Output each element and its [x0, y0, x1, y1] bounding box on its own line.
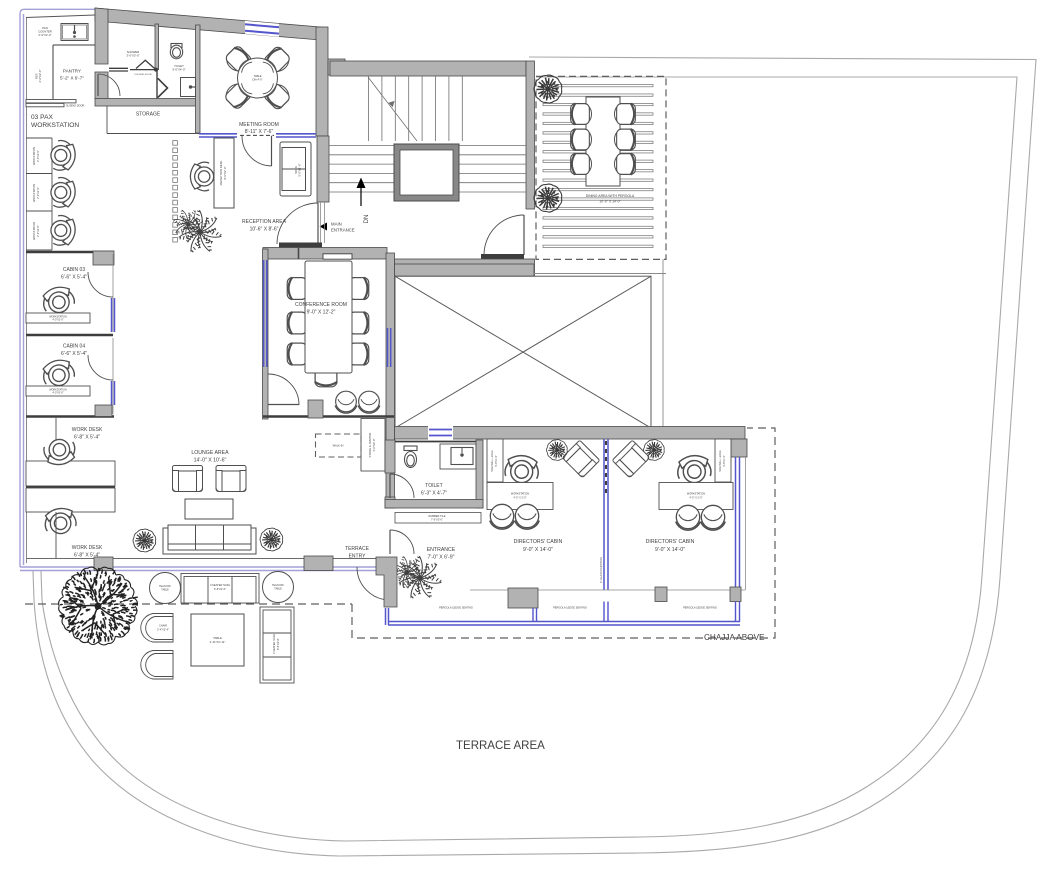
svg-text:ENTRANCE: ENTRANCE [331, 228, 355, 233]
svg-text:TABLE: TABLE [274, 587, 282, 590]
svg-text:10'-0" X 14'-0": 10'-0" X 14'-0" [599, 200, 621, 204]
svg-text:SIDE WALL LEDGE: SIDE WALL LEDGE [491, 450, 494, 472]
svg-text:2'-0"X1'-9": 2'-0"X1'-9" [37, 150, 40, 162]
svg-text:TERRACE: TERRACE [345, 546, 370, 552]
svg-text:9'-0" X 14'-0": 9'-0" X 14'-0" [523, 547, 553, 553]
svg-text:4'-0" X 2'-0": 4'-0" X 2'-0" [689, 497, 702, 500]
svg-text:WORK DESK: WORK DESK [72, 427, 103, 433]
svg-text:TOILET: TOILET [425, 483, 442, 489]
svg-text:WORKSTATION: WORKSTATION [31, 122, 79, 129]
svg-text:TERRACE AREA: TERRACE AREA [456, 740, 545, 752]
svg-text:LOUNGE AREA: LOUNGE AREA [191, 450, 229, 456]
svg-text:3 SEATER SOFA: 3 SEATER SOFA [210, 583, 230, 587]
svg-text:6'-6" X 5'-4": 6'-6" X 5'-4" [61, 275, 87, 281]
svg-text:WORKSTATION: WORKSTATION [511, 493, 529, 496]
svg-text:PERGOLA LEDGE SEATING: PERGOLA LEDGE SEATING [683, 606, 717, 610]
svg-text:2'-0"X1'-9": 2'-0"X1'-9" [37, 225, 40, 237]
svg-text:MEETING ROOM: MEETING ROOM [239, 122, 279, 128]
svg-text:4'-0" X 2'-0": 4'-0" X 2'-0" [513, 497, 526, 500]
svg-text:PANTRY: PANTRY [63, 69, 81, 74]
svg-text:5'-2" X 6'-7": 5'-2" X 6'-7" [60, 76, 84, 81]
svg-text:MAIN: MAIN [331, 222, 342, 227]
svg-text:CHAIR: CHAIR [159, 624, 167, 628]
svg-text:RUBBER TILE: RUBBER TILE [429, 514, 446, 518]
svg-text:3 SEATER SOFA: 3 SEATER SOFA [272, 634, 276, 654]
svg-text:6'-6"X2'-6": 6'-6"X2'-6" [276, 638, 280, 650]
svg-text:2'-0"X2'-0": 2'-0"X2'-0" [38, 33, 51, 37]
svg-text:PERGOLA LEDGE SEATING: PERGOLA LEDGE SEATING [439, 606, 473, 610]
svg-text:WORKSTATION: WORKSTATION [33, 184, 36, 202]
svg-text:2'-0"X1'-9": 2'-0"X1'-9" [37, 187, 40, 199]
svg-text:DINING AREA WITH PERGOLA: DINING AREA WITH PERGOLA [586, 194, 635, 198]
svg-text:CABIN 03: CABIN 03 [63, 267, 85, 273]
svg-text:ENTRANCE: ENTRANCE [427, 547, 456, 553]
svg-text:2'-4"X2'-4": 2'-4"X2'-4" [157, 628, 169, 632]
svg-text:FOLDING DOOR: FOLDING DOOR [135, 74, 152, 76]
svg-text:4'-0"X2'-0": 4'-0"X2'-0" [52, 392, 63, 395]
svg-text:5'-6"X1'-6": 5'-6"X1'-6" [298, 163, 302, 176]
svg-text:5'-0"X4'-0": 5'-0"X4'-0" [172, 67, 185, 71]
svg-text:2'-0"X6'-0": 2'-0"X6'-0" [372, 438, 376, 451]
svg-text:WORKSTATION: WORKSTATION [687, 493, 705, 496]
svg-text:9'-0" X 14'-0": 9'-0" X 14'-0" [655, 547, 685, 553]
svg-text:TABLE: TABLE [161, 588, 169, 591]
svg-text:PERGOLA LEDGE SEATING: PERGOLA LEDGE SEATING [553, 606, 587, 610]
svg-text:4" GLASS PARTITION: 4" GLASS PARTITION [599, 557, 603, 583]
svg-text:8'-11" X 7'-6": 8'-11" X 7'-6" [245, 129, 274, 135]
svg-text:6'-3" X 4'-7": 6'-3" X 4'-7" [421, 491, 447, 497]
svg-text:RECEPTION AREA: RECEPTION AREA [242, 219, 287, 225]
svg-text:DN: DN [364, 215, 370, 224]
svg-text:9'-0" X 12'-2": 9'-0" X 12'-2" [307, 310, 336, 316]
svg-text:7'-6"X3'-0": 7'-6"X3'-0" [431, 518, 443, 522]
svg-text:WALK-IN: WALK-IN [333, 444, 344, 448]
svg-text:STORAGE: STORAGE [136, 112, 161, 118]
svg-text:WORKSTATION: WORKSTATION [33, 147, 36, 165]
svg-text:4'-0"X2'-0": 4'-0"X2'-0" [52, 319, 63, 322]
svg-text:6'-8" X 5'-4": 6'-8" X 5'-4" [74, 435, 100, 441]
svg-text:CHAJJA ABOVE: CHAJJA ABOVE [704, 633, 765, 642]
svg-text:SIDE WALL LEDGE: SIDE WALL LEDGE [719, 450, 722, 472]
svg-text:03 PAX: 03 PAX [31, 114, 53, 121]
svg-text:SLIDING DOOR: SLIDING DOOR [66, 105, 84, 108]
svg-text:14'-0" X 10'-6": 14'-0" X 10'-6" [194, 458, 227, 464]
svg-text:CONFERENCE ROOM: CONFERENCE ROOM [295, 302, 347, 308]
svg-text:2'-11"X2'-11": 2'-11"X2'-11" [210, 640, 226, 644]
svg-text:CABIN 04: CABIN 04 [63, 344, 85, 350]
svg-text:3'-0"X3'-0": 3'-0"X3'-0" [126, 53, 139, 57]
svg-text:5'-0"X1'-3": 5'-0"X1'-3" [495, 455, 498, 466]
svg-text:DIRECTORS' CABIN: DIRECTORS' CABIN [646, 539, 695, 545]
svg-text:ENTRY: ENTRY [349, 554, 367, 560]
svg-text:7'-0" X 6'-9": 7'-0" X 6'-9" [427, 555, 454, 561]
svg-text:DIA 4'-0": DIA 4'-0" [252, 77, 262, 81]
svg-text:DIRECTORS' CABIN: DIRECTORS' CABIN [514, 539, 563, 545]
svg-text:8'-0"X2'-0": 8'-0"X2'-0" [223, 166, 227, 179]
svg-text:2'-6"X2'-6": 2'-6"X2'-6" [38, 69, 42, 82]
svg-text:5'-0"X1'-3": 5'-0"X1'-3" [723, 455, 726, 466]
svg-text:WORK DESK: WORK DESK [72, 545, 103, 551]
svg-text:6'-6" X 5'-4": 6'-6" X 5'-4" [61, 351, 87, 357]
svg-text:WORKSTATION: WORKSTATION [33, 222, 36, 240]
svg-text:10'-6" X 8'-6": 10'-6" X 8'-6" [250, 227, 279, 233]
svg-text:6'-6"X2'-6": 6'-6"X2'-6" [214, 587, 226, 591]
